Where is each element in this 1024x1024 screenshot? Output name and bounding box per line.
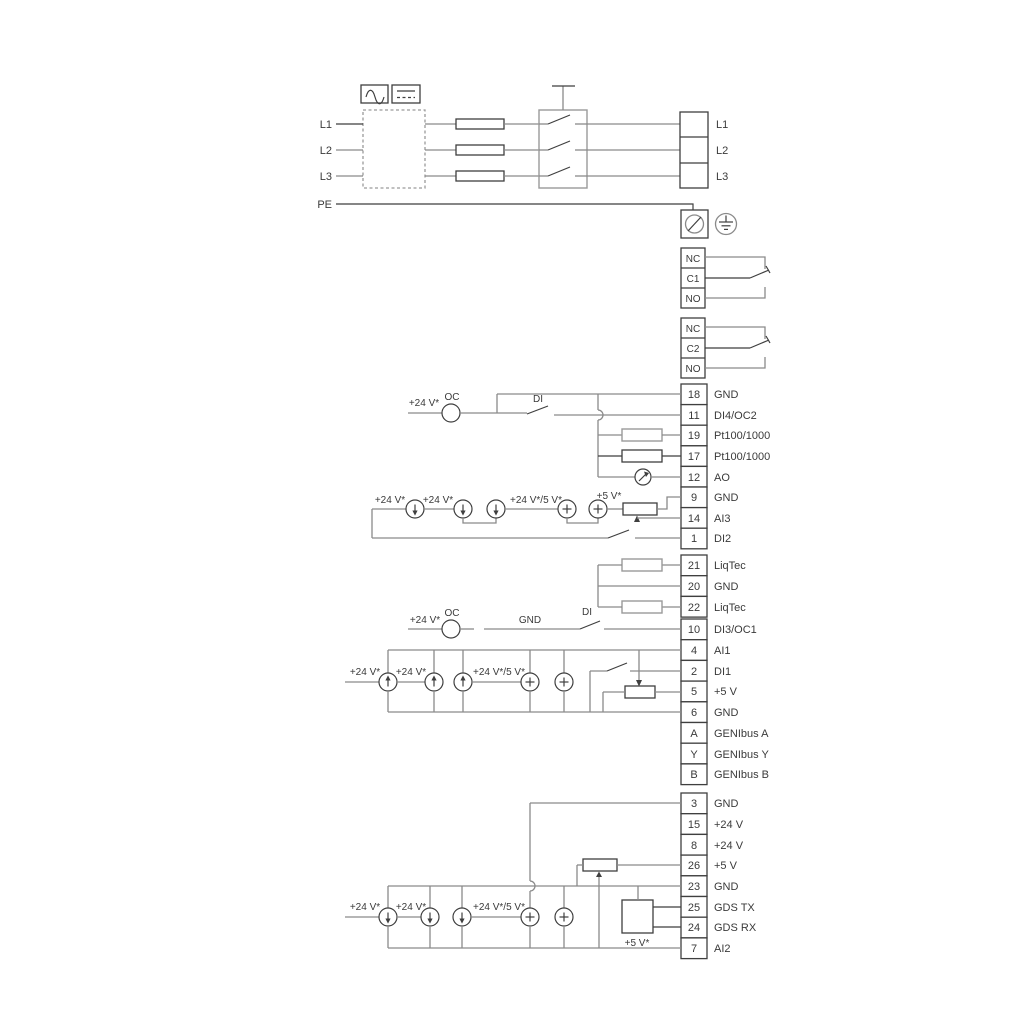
terminal-19-label: Pt100/1000	[714, 430, 770, 442]
terminal-10-number: 10	[688, 624, 700, 636]
terminal-22-label: LiqTec	[714, 602, 746, 614]
ai3-sensor-options: +24 V* +24 V* +24 V*/5 V* +5 V*	[372, 491, 681, 538]
oc-output-icon	[442, 404, 460, 422]
setpoint-potentiometer	[625, 686, 655, 698]
current-sink-icon	[406, 500, 424, 518]
terminal-b-label: GENIbus B	[714, 769, 769, 781]
relay2-c2-label: C2	[687, 344, 700, 355]
di-label: DI	[533, 394, 543, 405]
terminal-21-label: LiqTec	[714, 560, 746, 572]
pot-wiper-arrow	[634, 516, 640, 523]
pt100-sensor-1	[622, 429, 662, 441]
terminal-strip-d: 3 15 8 26 23 25 24 7 GND +24 V +24 V +5 …	[681, 793, 757, 959]
current-sink-icon	[487, 500, 505, 518]
terminal-b-number: B	[690, 769, 697, 781]
voltage-source-icon	[521, 673, 539, 691]
terminal-15-label: +24 V	[714, 819, 744, 831]
pe-terminal	[681, 210, 708, 238]
fuse-l1	[456, 119, 504, 129]
terminal-y-label: GENIbus Y	[714, 749, 769, 761]
terminal-12-number: 12	[688, 472, 700, 484]
terminal-7-label: AI2	[714, 943, 731, 955]
oc-label: OC	[445, 608, 460, 619]
mains-output-l3-label: L3	[716, 171, 728, 183]
mains-input-l1-label: L1	[320, 119, 332, 131]
relay-2-block: NC C2 NO	[681, 318, 770, 378]
v24-label: +24 V*	[396, 667, 426, 678]
voltage-source-icon	[558, 500, 576, 518]
di3-switch-blade	[580, 621, 600, 629]
di2-switch-blade	[608, 530, 629, 538]
v24-label: +24 V*	[409, 398, 439, 409]
pe-wire	[336, 204, 693, 210]
mains-output-l2-label: L2	[716, 145, 728, 157]
terminal-26-label: +5 V	[714, 860, 738, 872]
terminal-18-label: GND	[714, 389, 739, 401]
v24or5-label: +24 V*/5 V*	[473, 667, 525, 678]
terminal-26-number: 26	[688, 860, 700, 872]
mains-terminal-block	[680, 112, 708, 188]
terminal-8-number: 8	[691, 840, 697, 852]
earth-icon	[716, 214, 737, 235]
gds-sensor-box	[622, 900, 653, 933]
terminal-1-label: DI2	[714, 533, 731, 545]
strip-a-wiring: +24 V* OC DI	[408, 392, 681, 485]
liqtec-sensor-1	[622, 559, 662, 571]
dc-symbol-box	[392, 85, 420, 103]
fuse-l2	[456, 145, 504, 155]
diagram-canvas: L1 L2 L3 PE	[0, 0, 1024, 1024]
terminal-14-number: 14	[688, 513, 700, 525]
terminal-a-label: GENIbus A	[714, 728, 769, 740]
terminal-10-label: DI3/OC1	[714, 624, 757, 636]
liqtec-wiring	[598, 559, 681, 613]
terminal-2-label: DI1	[714, 666, 731, 678]
terminal-18-number: 18	[688, 389, 700, 401]
v24-label: +24 V*	[396, 902, 426, 913]
relay2-no-label: NO	[686, 364, 701, 375]
voltage-source-icon	[589, 500, 607, 518]
terminal-strip-b: 21 20 22 LiqTec GND LiqTec	[681, 555, 746, 617]
terminal-a-number: A	[690, 728, 698, 740]
terminal-23-label: GND	[714, 881, 739, 893]
fuse-l3	[456, 171, 504, 181]
relay-1-block: NC C1 NO	[681, 248, 770, 308]
terminal-15-number: 15	[688, 819, 700, 831]
terminal-6-number: 6	[691, 707, 697, 719]
terminal-23-number: 23	[688, 881, 700, 893]
ai1-sensor-options: +24 V* +24 V* +24 V*/5 V*	[345, 650, 681, 712]
terminal-5-number: 5	[691, 686, 697, 698]
terminal-5-label: +5 V	[714, 686, 738, 698]
v24-label: +24 V*	[350, 667, 380, 678]
terminal-strip-a: 18 11 19 17 12 9 14 1 GND DI4/OC2 Pt100/…	[681, 384, 770, 549]
current-sink-icon	[453, 908, 471, 926]
terminal-20-label: GND	[714, 581, 739, 593]
v24-label: +24 V*	[423, 495, 453, 506]
terminal-12-label: AO	[714, 472, 730, 484]
gnd-wire-label: GND	[519, 615, 541, 626]
terminal-17-number: 17	[688, 451, 700, 463]
relay1-contact-blade	[750, 270, 769, 278]
mains-section: L1 L2 L3 PE	[317, 85, 736, 238]
pt100-sensor-2	[622, 450, 662, 462]
di3-wiring: +24 V* OC GND DI	[408, 607, 681, 638]
v24-label: +24 V*	[410, 615, 440, 626]
ai2-sensor-options: +24 V* +24 V* +24 V*/5 V* +5 V*	[345, 803, 681, 949]
terminal-9-number: 9	[691, 492, 697, 504]
terminal-2-number: 2	[691, 666, 697, 678]
relay1-nc-label: NC	[686, 254, 700, 265]
di1-switch-blade	[607, 663, 627, 671]
terminal-11-label: DI4/OC2	[714, 410, 757, 422]
terminal-3-number: 3	[691, 798, 697, 810]
wiring-diagram: L1 L2 L3 PE	[0, 0, 1024, 1024]
mains-input-l2-label: L2	[320, 145, 332, 157]
switch-blade-l3	[548, 167, 570, 176]
terminal-19-number: 19	[688, 430, 700, 442]
current-source-icon	[454, 673, 472, 691]
mains-input-pe-label: PE	[317, 199, 332, 211]
switch-blade-l2	[548, 141, 570, 150]
terminal-7-number: 7	[691, 943, 697, 955]
terminal-6-label: GND	[714, 707, 739, 719]
terminal-4-label: AI1	[714, 645, 731, 657]
v24or5-label: +24 V*/5 V*	[473, 902, 525, 913]
v24-label: +24 V*	[375, 495, 405, 506]
terminal-strip-c: 10 4 2 5 6 A Y B DI3/OC1 AI1 DI1 +5 V GN…	[681, 619, 769, 785]
voltage-source-icon	[555, 908, 573, 926]
drive-dashed-box	[363, 110, 425, 188]
voltage-source-icon	[521, 908, 539, 926]
current-sink-icon	[379, 908, 397, 926]
oc-output-icon	[442, 620, 460, 638]
terminal-17-label: Pt100/1000	[714, 451, 770, 463]
terminal-25-label: GDS TX	[714, 902, 755, 914]
terminal-22-number: 22	[688, 602, 700, 614]
terminal-24-label: GDS RX	[714, 922, 757, 934]
relay2-nc-label: NC	[686, 324, 700, 335]
di4-switch-blade	[527, 406, 548, 414]
voltage-source-icon	[555, 673, 573, 691]
oc-label: OC	[445, 392, 460, 403]
current-sink-icon	[421, 908, 439, 926]
current-source-icon	[379, 673, 397, 691]
terminal-4-number: 4	[691, 645, 697, 657]
analog-output-meter-icon	[635, 469, 651, 485]
v24or5-label: +24 V*/5 V*	[510, 495, 562, 506]
relay1-no-label: NO	[686, 294, 701, 305]
switch-blade-l1	[548, 115, 570, 124]
relay2-contact-blade	[750, 340, 769, 348]
current-source-icon	[425, 673, 443, 691]
setpoint-potentiometer	[583, 859, 617, 877]
setpoint-potentiometer	[623, 503, 657, 522]
terminal-24-number: 24	[688, 922, 700, 934]
terminal-11-number: 11	[688, 410, 699, 422]
di-label: DI	[582, 607, 592, 618]
current-sink-icon	[454, 500, 472, 518]
terminal-8-label: +24 V	[714, 840, 744, 852]
relay1-c1-label: C1	[687, 274, 700, 285]
terminal-21-number: 21	[688, 560, 700, 572]
terminal-y-number: Y	[690, 749, 698, 761]
terminal-1-number: 1	[691, 533, 697, 545]
mains-output-l1-label: L1	[716, 119, 728, 131]
terminal-9-label: GND	[714, 492, 739, 504]
pot-wiper-arrow	[596, 872, 602, 878]
main-switch	[539, 86, 587, 188]
liqtec-sensor-2	[622, 601, 662, 613]
mains-input-l3-label: L3	[320, 171, 332, 183]
terminal-3-label: GND	[714, 798, 739, 810]
terminal-25-number: 25	[688, 902, 700, 914]
terminal-20-number: 20	[688, 581, 700, 593]
terminal-14-label: AI3	[714, 513, 731, 525]
v24-label: +24 V*	[350, 902, 380, 913]
